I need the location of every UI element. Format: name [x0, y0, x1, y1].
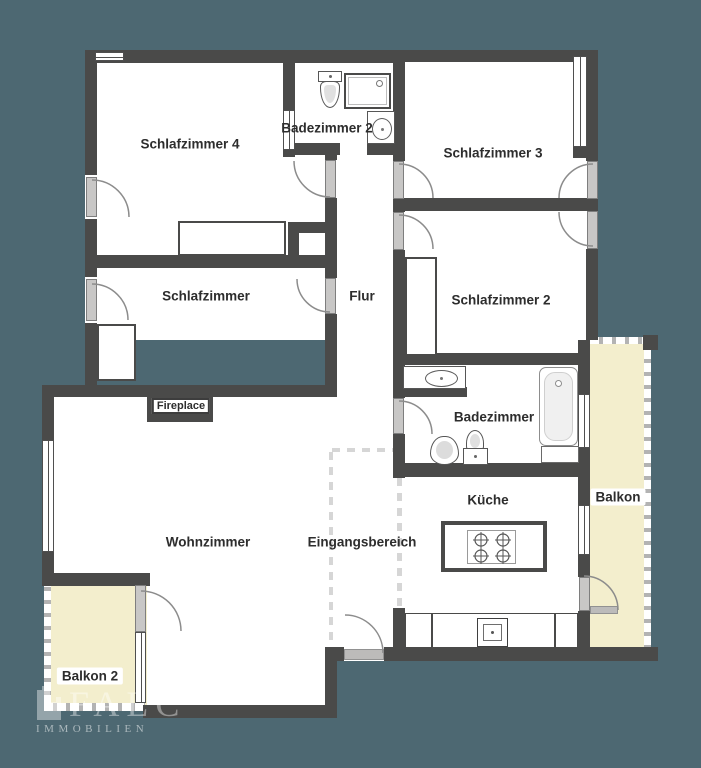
wall — [288, 232, 299, 257]
fixture-badezimmer2-shower — [344, 73, 391, 109]
wall — [85, 255, 337, 268]
room-label-schlafzimmer-3: Schlafzimmer 3 — [443, 146, 542, 161]
door-panel-flur-schlafzimmer2 — [393, 212, 404, 250]
room-label-schlafzimmer-2: Schlafzimmer 2 — [451, 293, 550, 308]
stove — [467, 530, 516, 564]
wall — [85, 50, 400, 63]
wall — [85, 219, 97, 277]
room-label-kueche: Küche — [467, 493, 508, 508]
window — [42, 440, 54, 552]
fixture-badezimmer-bidet — [463, 430, 488, 465]
shower-drain — [376, 80, 383, 87]
door-panel-schlafzimmer-exterior — [86, 279, 97, 321]
fixture-schlafzimmer2-wardrobe — [405, 257, 437, 356]
fixture-badezimmer-basin — [403, 366, 466, 389]
wall — [283, 50, 295, 110]
wall — [393, 50, 405, 161]
fixture-badezimmer-cabinet — [541, 446, 579, 463]
wall — [85, 323, 97, 397]
toilet-flush-dot — [329, 75, 332, 78]
fixture-schlafzimmer4-wardrobe — [178, 221, 286, 256]
wall — [325, 314, 337, 397]
door-panel-flur-schlafzimmer3 — [393, 161, 404, 199]
door-panel-kueche-balkon — [579, 577, 590, 611]
room-label-schlafzimmer: Schlafzimmer — [162, 289, 250, 304]
fixture-badezimmer2-toilet — [318, 71, 342, 108]
falc-logo-row: FALC — [36, 682, 186, 720]
falc-logo-wordmark: FALC — [69, 688, 186, 720]
wall — [42, 552, 54, 585]
wall — [325, 198, 337, 278]
window-glass-line — [96, 57, 123, 58]
wall — [393, 50, 598, 62]
wall — [586, 50, 598, 161]
wall — [578, 340, 590, 394]
bathtub-drain — [555, 380, 562, 387]
door-threshold — [590, 606, 618, 614]
fixture-badezimmer-bathtub — [539, 367, 578, 446]
stove-burners — [468, 531, 517, 565]
window-glass-line — [580, 57, 581, 146]
fixture-kueche-counter — [405, 613, 578, 648]
wall — [643, 335, 658, 350]
kitchen-sink-inner — [483, 624, 502, 641]
window-glass-line — [584, 395, 585, 447]
room-label-badezimmer-2: Badezimmer 2 — [281, 121, 373, 136]
wall — [578, 448, 590, 505]
sink-drain-dot — [381, 128, 384, 131]
toilet-bowl-inner — [324, 85, 336, 103]
room-label-fireplace: Fireplace — [152, 398, 210, 414]
wall — [393, 434, 405, 478]
wall — [393, 463, 590, 477]
room-label-eingangsbereich: Eingangsbereich — [308, 535, 417, 550]
sink-drain-dot — [440, 377, 443, 380]
door-panel-wohnzimmer-balkon2 — [135, 585, 146, 632]
wall — [325, 647, 337, 718]
fixture-schlafzimmer-wardrobe — [97, 324, 136, 381]
kitchen-sink — [477, 618, 508, 647]
toilet-bowl-inner — [436, 441, 453, 459]
wall — [393, 199, 405, 212]
wall — [393, 198, 598, 211]
counter-divider — [431, 614, 433, 647]
sink-basin — [425, 370, 458, 387]
toilet-bowl — [320, 81, 340, 108]
floorplan: Schlafzimmer 4Badezimmer 2Schlafzimmer 3… — [0, 0, 701, 768]
wall — [578, 611, 590, 661]
bidet-base — [463, 448, 488, 465]
wall — [586, 199, 598, 211]
fixture-badezimmer-toilet — [430, 436, 459, 465]
room-label-balkon: Balkon — [590, 489, 645, 506]
bidet-dot — [474, 455, 477, 458]
wall — [384, 647, 658, 661]
room-label-flur: Flur — [349, 289, 375, 304]
falc-logo-subtitle: IMMOBILIEN — [36, 723, 186, 735]
wall — [42, 573, 150, 586]
door-panel-schlafzimmer4-exterior — [86, 177, 97, 217]
room-label-badezimmer: Badezimmer — [454, 410, 534, 425]
sink-basin — [372, 118, 392, 140]
wall — [85, 50, 97, 175]
window — [573, 56, 587, 147]
door-panel-flur-schlafzimmer4 — [325, 160, 336, 198]
wall — [586, 249, 598, 340]
wall — [42, 385, 54, 440]
counter-divider — [554, 614, 556, 647]
window-glass-line — [48, 441, 49, 551]
kitchen-sink-drain — [491, 631, 494, 634]
wall — [393, 608, 405, 661]
wall — [578, 555, 590, 577]
falc-building-icon — [36, 684, 62, 720]
door-threshold — [344, 649, 384, 660]
door-panel-flur-badezimmer — [393, 398, 404, 434]
window — [578, 505, 590, 555]
falc-logo: FALC IMMOBILIEN — [36, 682, 186, 735]
door-panel-schlafzimmer2-right — [587, 211, 598, 249]
window-glass-line — [584, 506, 585, 554]
open-plan-boundary — [332, 448, 398, 452]
room-label-schlafzimmer-4: Schlafzimmer 4 — [140, 137, 239, 152]
room-label-wohnzimmer: Wohnzimmer — [166, 535, 251, 550]
window — [95, 52, 124, 61]
window — [578, 394, 590, 448]
door-panel-schlafzimmer3-right — [587, 161, 598, 199]
door-panel-flur-schlafzimmer — [325, 278, 336, 314]
fixture-kueche-island — [441, 521, 547, 572]
bidet-bowl-inner — [470, 434, 480, 448]
